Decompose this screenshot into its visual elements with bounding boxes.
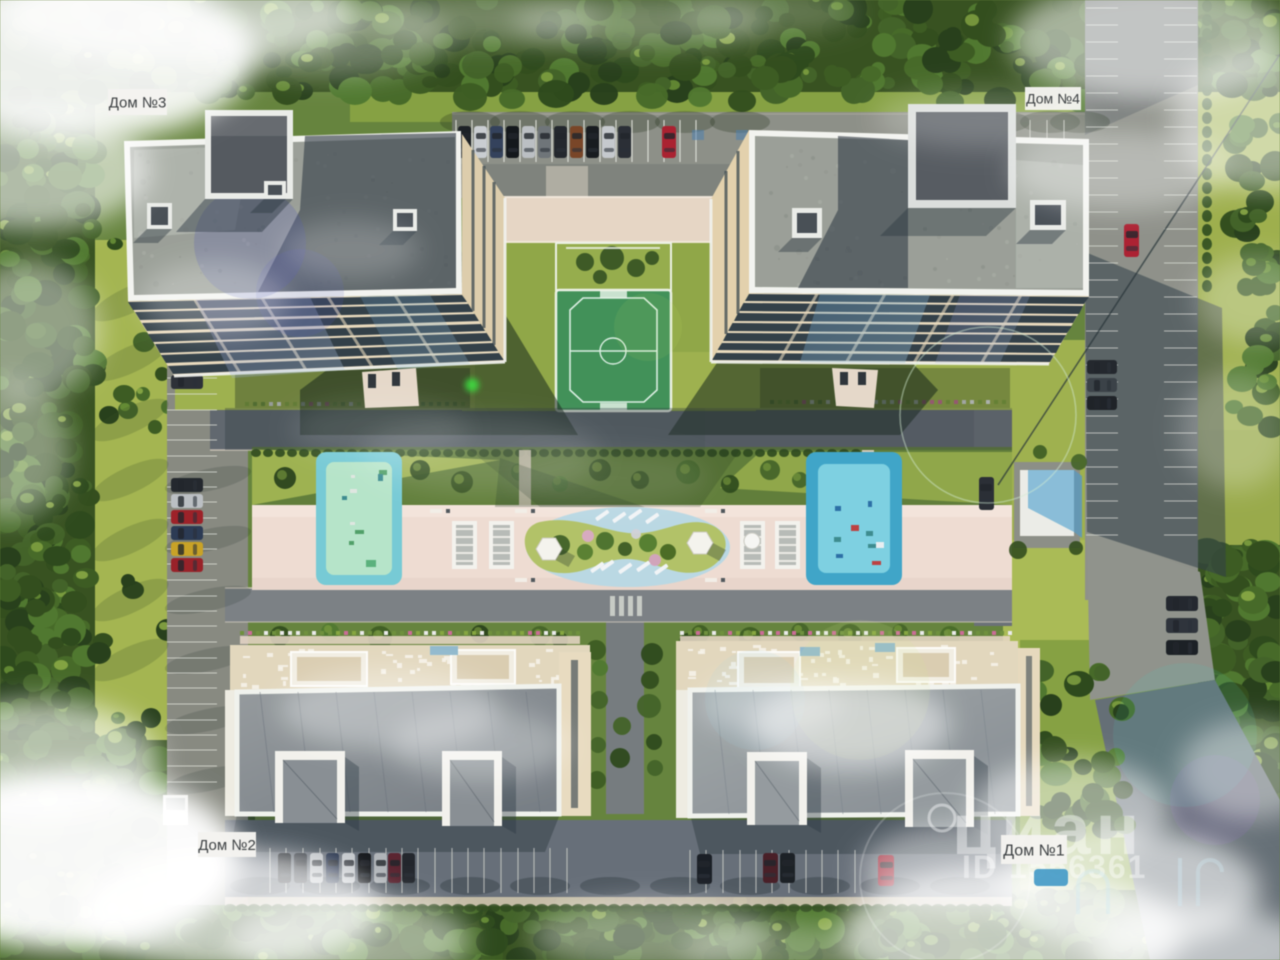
svg-text:Дом №4: Дом №4 (1026, 91, 1080, 107)
svg-text:Дом №3: Дом №3 (109, 94, 167, 111)
svg-text:Дом №1: Дом №1 (1003, 842, 1065, 859)
svg-text:Дом №2: Дом №2 (198, 837, 256, 854)
